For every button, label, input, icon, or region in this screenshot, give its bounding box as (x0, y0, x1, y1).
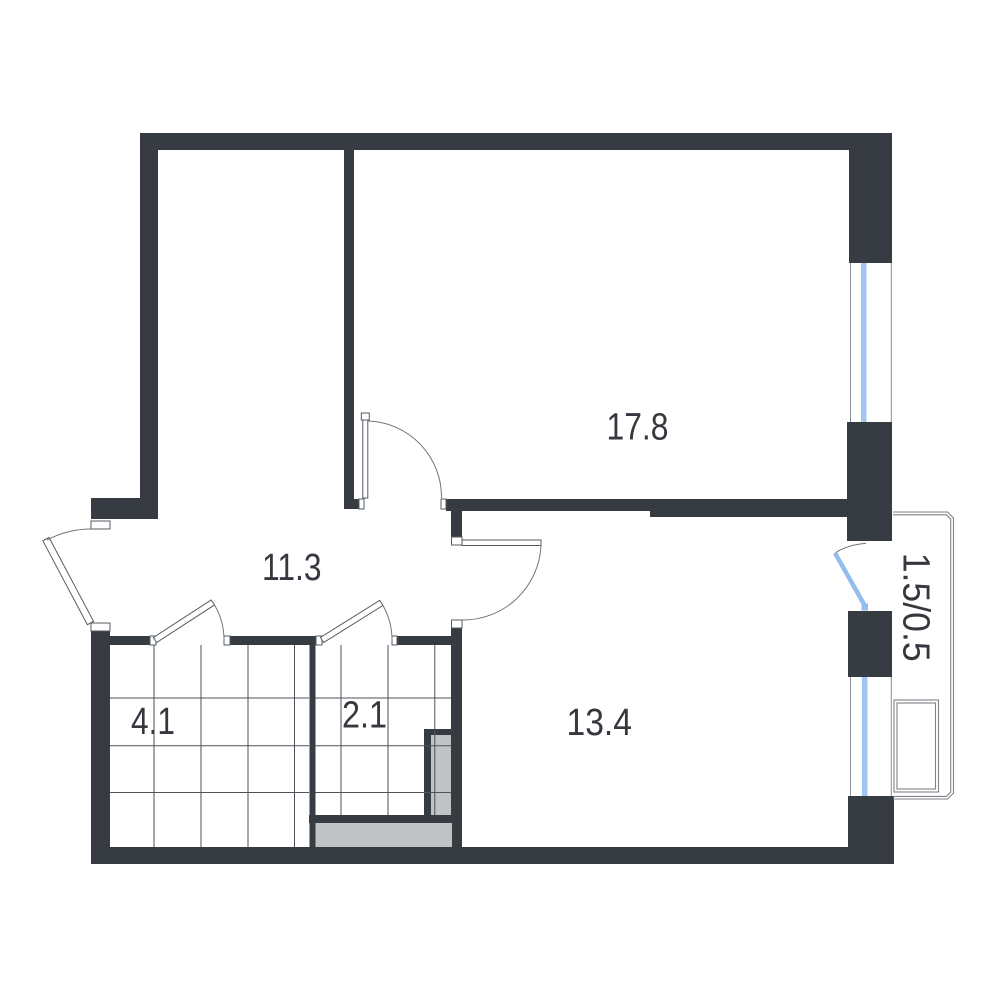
svg-text:13.4: 13.4 (567, 702, 633, 744)
svg-text:1.5/0.5: 1.5/0.5 (895, 553, 937, 662)
svg-text:2.1: 2.1 (342, 695, 387, 737)
svg-text:4.1: 4.1 (131, 701, 175, 743)
svg-text:11.3: 11.3 (262, 547, 322, 589)
svg-text:17.8: 17.8 (607, 407, 669, 449)
